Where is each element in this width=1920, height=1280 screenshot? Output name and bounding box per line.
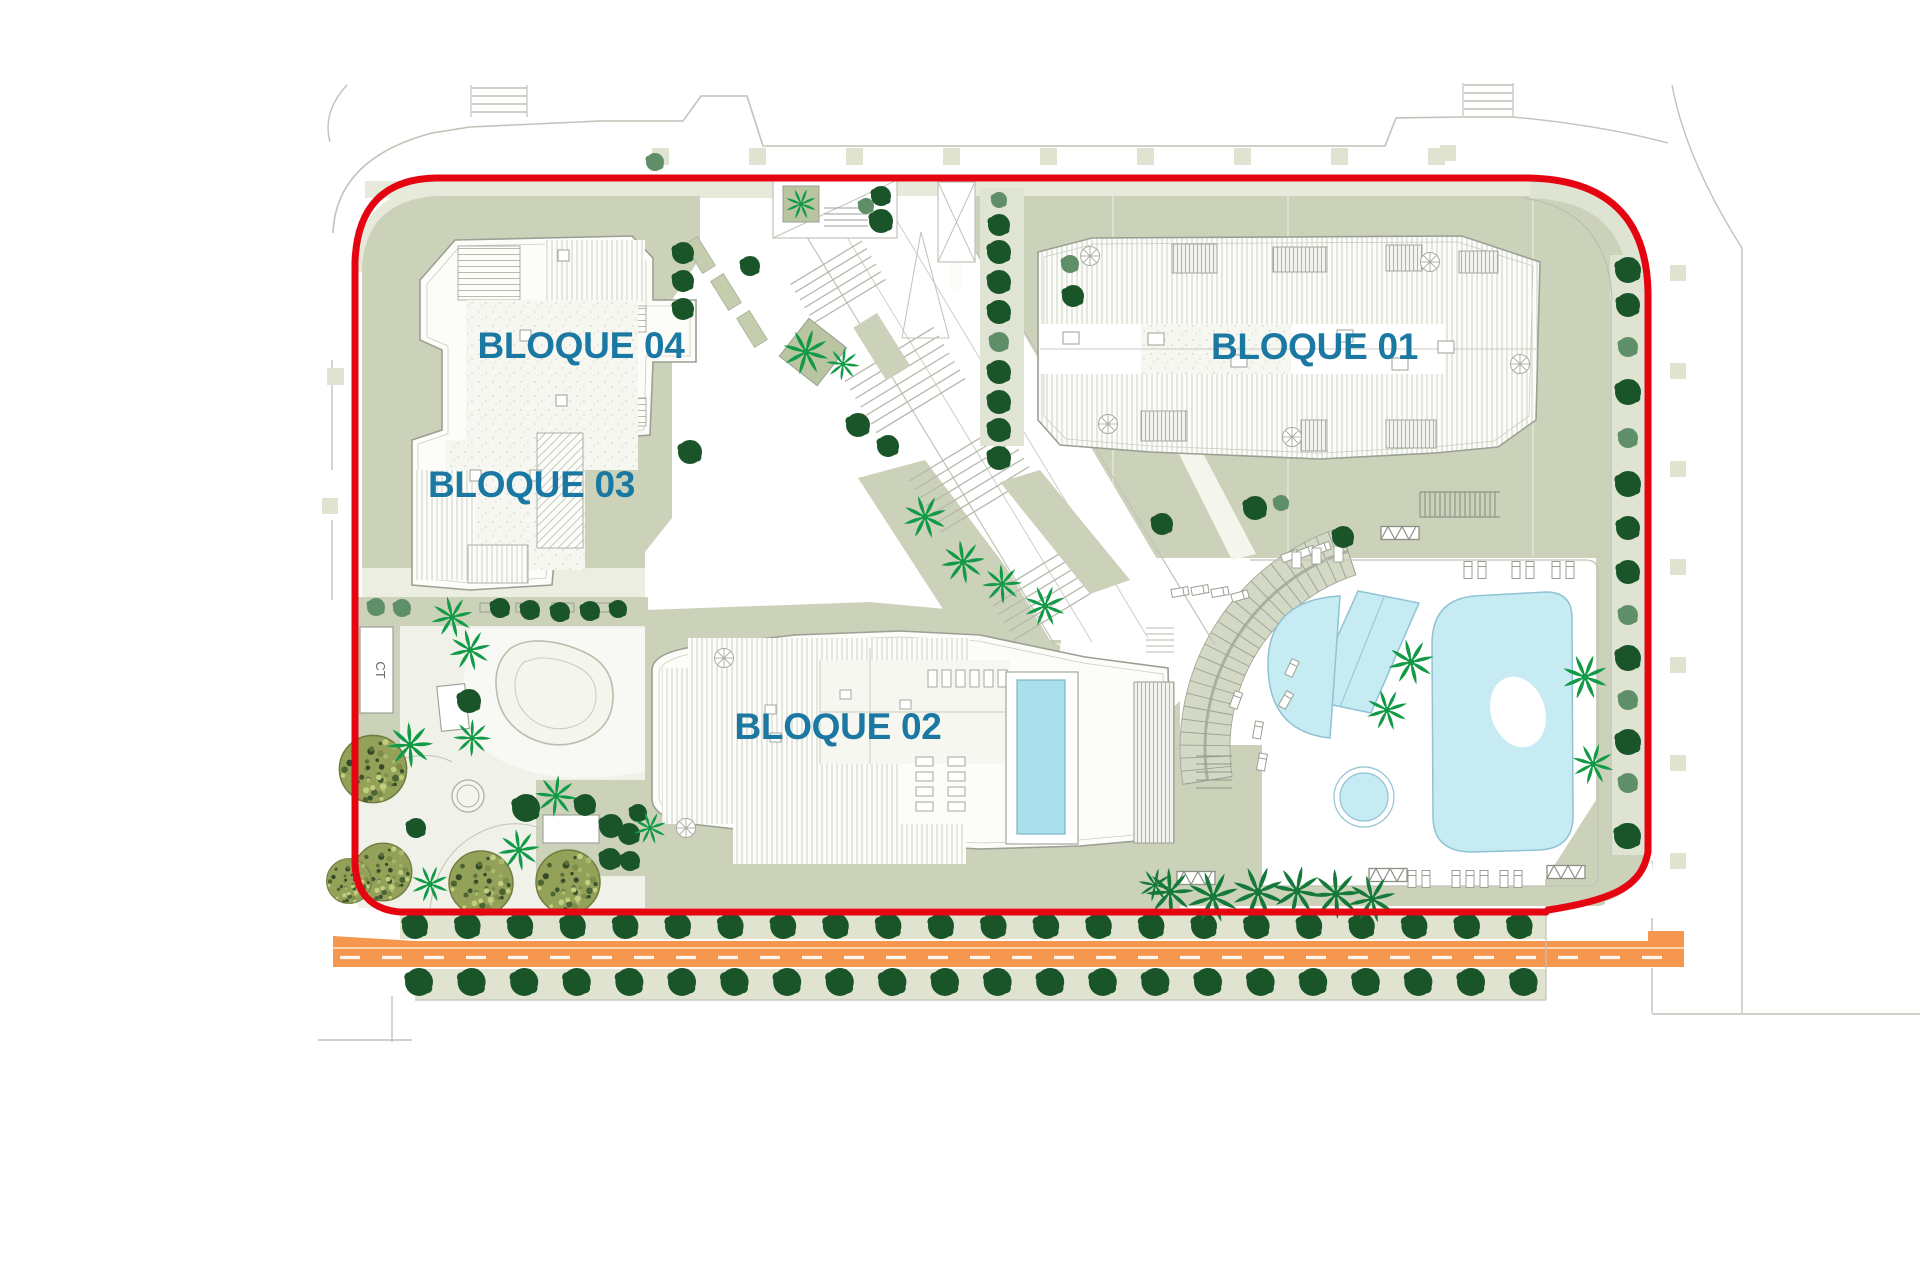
svg-text:BLOQUE 04: BLOQUE 04 <box>477 325 685 366</box>
svg-text:BLOQUE 01: BLOQUE 01 <box>1211 326 1418 367</box>
svg-text:CT: CT <box>373 661 388 678</box>
svg-text:BLOQUE 02: BLOQUE 02 <box>734 706 941 747</box>
svg-text:BLOQUE 03: BLOQUE 03 <box>428 464 635 505</box>
